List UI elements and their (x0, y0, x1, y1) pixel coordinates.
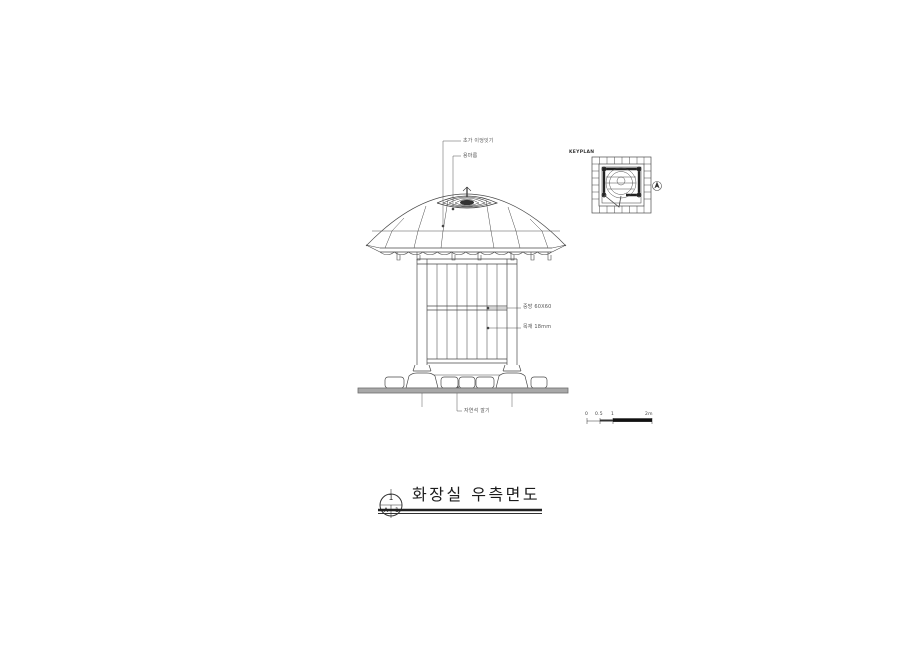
column-center-lines (422, 393, 512, 407)
annotation-wall-plank: 목재 18mm (523, 324, 551, 330)
wall-elevation (413, 259, 521, 375)
top-lintel (417, 259, 517, 264)
foundation (358, 373, 568, 407)
roof-eave-fascia (380, 248, 552, 252)
scale-tick-05: 0.5 (595, 412, 603, 417)
roof-slat-lines (385, 231, 548, 248)
north-arrow-icon (653, 182, 662, 191)
sheet-canvas: 초가 이엉잇기 용마름 중방 60X60 목재 18mm 자연석 깔기 KEYP… (0, 0, 920, 650)
column-left (413, 259, 431, 371)
roof-eave-tips (366, 245, 566, 252)
scale-tick-0: 0 (585, 412, 588, 417)
keyplan-fixture (606, 168, 636, 198)
keyplan (592, 157, 651, 213)
ridge-ornament (437, 187, 497, 208)
cad-linework (0, 0, 920, 650)
keyplan-door-swing (604, 195, 621, 207)
ridge-center (460, 200, 474, 205)
ground-bar (358, 388, 568, 393)
annotation-base-stone: 자연석 깔기 (464, 408, 490, 414)
annotation-mid-rail: 중방 60X60 (523, 304, 552, 310)
leader-ridge (453, 156, 461, 209)
sheet-ref-letter: A (382, 507, 390, 514)
scale-tick-2m: 2m (645, 412, 653, 417)
roof-eave-scallops (380, 252, 552, 255)
annotation-roof-thatch: 초가 이엉잇기 (463, 138, 494, 144)
keyplan-title: KEYPLAN (569, 150, 594, 155)
scale-bar (587, 418, 652, 424)
sheet-ref-number: 1 (393, 507, 401, 514)
sheet-detail-number: 1 (385, 494, 397, 502)
footing-left (406, 373, 438, 388)
leader-lines (442, 141, 521, 411)
scale-tick-1: 1 (611, 412, 614, 417)
bottom-rail (427, 359, 507, 363)
column-right (503, 259, 521, 371)
footing-right (496, 373, 528, 388)
wall-planks (437, 264, 497, 359)
drawing-title: 화장실 우측면도 (412, 486, 540, 504)
annotation-ridge: 용마름 (463, 153, 477, 159)
